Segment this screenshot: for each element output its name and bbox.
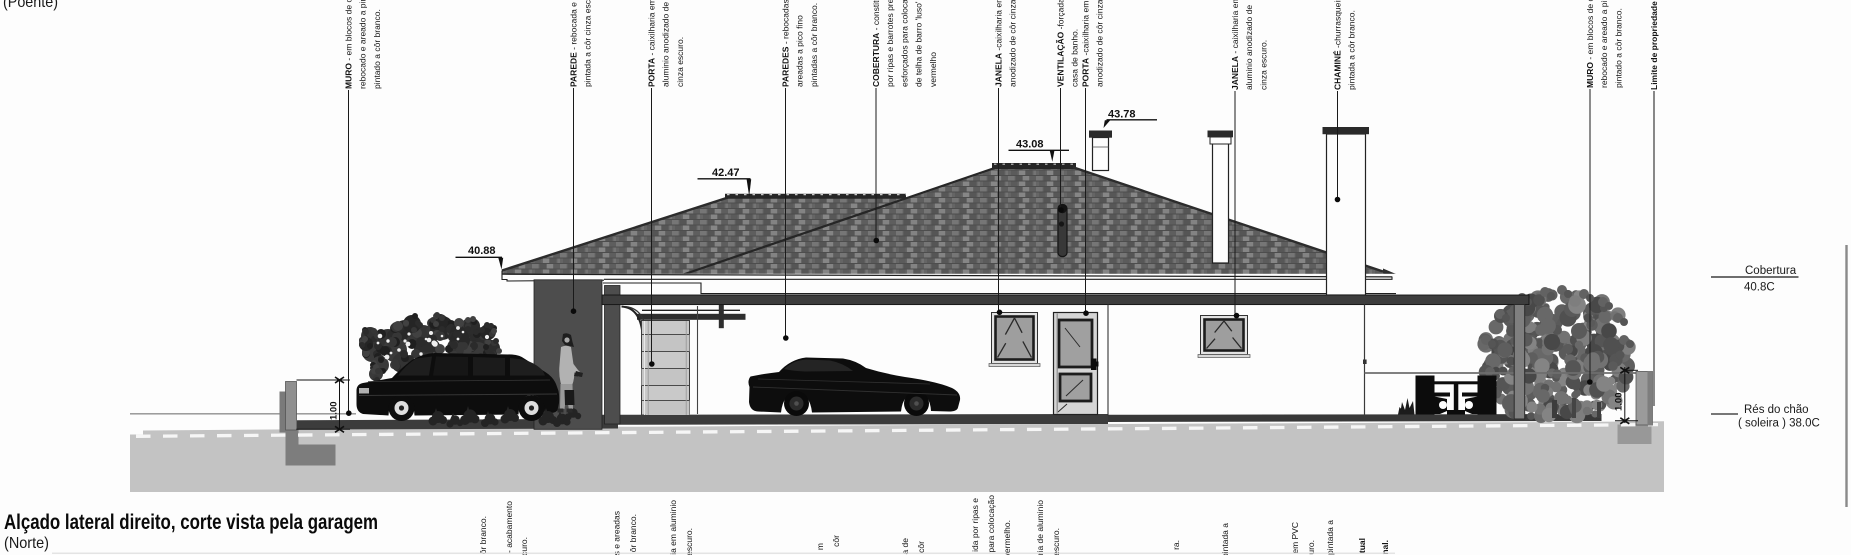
svg-text:42.47: 42.47	[712, 167, 740, 179]
svg-text:1.00: 1.00	[1614, 393, 1625, 412]
svg-text:tual: tual	[1357, 538, 1367, 553]
svg-text:PORTA -caixilharia em aluminio: PORTA -caixilharia em aluminio	[1081, 0, 1091, 87]
svg-text:Limite de propriedade: Limite de propriedade	[1649, 1, 1659, 90]
svg-text:pintado a côr branco.: pintado a côr branco.	[372, 9, 382, 89]
svg-text:40.88: 40.88	[468, 245, 496, 257]
svg-text:anodizado de côr cinza esc.: anodizado de côr cinza esc.	[1008, 0, 1018, 87]
svg-text:por ripas e barrotes pre: por ripas e barrotes pre	[885, 0, 895, 87]
svg-text:vermelho: vermelho	[928, 52, 938, 87]
svg-text:curo.: curo.	[519, 537, 529, 555]
svg-text:nal.: nal.	[1380, 540, 1390, 555]
svg-text:aluminio anodizado de: aluminio anodizado de	[1244, 5, 1254, 90]
svg-text:43.78: 43.78	[1108, 109, 1136, 121]
svg-text:JANELA -caixilharia em: JANELA -caixilharia em	[994, 0, 1004, 87]
svg-text:m: m	[815, 543, 825, 550]
svg-text:(Poente): (Poente)	[3, 0, 58, 11]
svg-text:uro.: uro.	[1306, 540, 1316, 555]
svg-text:pintada a: pintada a	[1220, 523, 1230, 555]
svg-text:de telha de barro 'luso': de telha de barro 'luso'	[914, 1, 924, 87]
svg-text:escuro.: escuro.	[1051, 528, 1061, 555]
svg-text:côr: côr	[916, 541, 926, 553]
svg-text:1.00: 1.00	[329, 402, 340, 421]
svg-text:vermelho.: vermelho.	[1002, 520, 1012, 555]
svg-text:PORTA - caixilharia em: PORTA - caixilharia em	[647, 0, 657, 87]
svg-text:( soleira ) 38.0C: ( soleira ) 38.0C	[1738, 418, 1820, 430]
svg-text:- acabamento: - acabamento	[504, 501, 514, 553]
svg-text:JANELA - caixilharia em: JANELA - caixilharia em	[1230, 0, 1240, 90]
svg-text:areadas a pico fino: areadas a pico fino	[795, 15, 805, 87]
svg-text:ôr branco.: ôr branco.	[478, 516, 488, 554]
svg-text:s para colocação: s para colocação	[986, 495, 996, 555]
svg-text:43.08: 43.08	[1016, 139, 1044, 151]
svg-text:s e areadas: s e areadas	[612, 511, 622, 555]
svg-text:ôr branco.: ôr branco.	[628, 514, 638, 552]
svg-text:pintada a côr cinza escuro.: pintada a côr cinza escuro.	[583, 0, 593, 87]
svg-text:ria em aluminio: ria em aluminio	[668, 500, 678, 555]
svg-text:CHAMINÉ -churrasqueira: CHAMINÉ -churrasqueira	[1333, 0, 1343, 90]
svg-text:PAREDE - rebocada e: PAREDE - rebocada e	[569, 2, 579, 87]
svg-text:cinza escuro.: cinza escuro.	[1258, 40, 1268, 90]
svg-text:cinza escuro.: cinza escuro.	[675, 37, 685, 87]
svg-text:escuro.: escuro.	[684, 528, 694, 555]
svg-text:MURO - em blocos de cimento: MURO - em blocos de cimento	[1585, 0, 1595, 88]
svg-text:aluminio anodizado de côr: aluminio anodizado de côr	[661, 0, 671, 87]
svg-text:PAREDES - rebocadas e: PAREDES - rebocadas e	[781, 0, 791, 87]
svg-text:anodizado de côr cinza esc.: anodizado de côr cinza esc.	[1095, 0, 1105, 87]
svg-text:VENTILAÇÃO -forçada da: VENTILAÇÃO -forçada da	[1056, 0, 1066, 87]
svg-text:ra.: ra.	[1171, 540, 1181, 550]
svg-text:rebocado e areado a pintar: rebocado e areado a pintar	[358, 0, 368, 89]
svg-text:(Norte): (Norte)	[4, 535, 49, 552]
svg-text:ria de aluminio: ria de aluminio	[1035, 500, 1045, 555]
svg-text:COBERTURA - constituida: COBERTURA - constituida	[871, 0, 881, 87]
svg-text:a de: a de	[900, 538, 910, 555]
svg-text:ida por ripas e: ida por ripas e	[970, 498, 980, 552]
svg-text:rebocado e areado a pintar: rebocado e areado a pintar	[1599, 0, 1609, 88]
svg-text:Alçado lateral direito, corte: Alçado lateral direito, corte vista pela…	[4, 510, 378, 534]
svg-text:casa de banho.: casa de banho.	[1070, 29, 1080, 87]
svg-text:côr: côr	[831, 535, 841, 547]
svg-text:pintadas a côr branco.: pintadas a côr branco.	[809, 3, 819, 87]
svg-text:pintado a côr branco.: pintado a côr branco.	[1613, 8, 1623, 88]
svg-text:MURO - em blocos de cimento: MURO - em blocos de cimento	[344, 0, 354, 89]
svg-text:em PVC: em PVC	[1290, 522, 1300, 554]
svg-text:pintada a: pintada a	[1325, 520, 1335, 555]
svg-text:Rés do chão: Rés do chão	[1744, 404, 1809, 416]
svg-text:pintada a côr branco.: pintada a côr branco.	[1347, 10, 1357, 90]
svg-text:40.8C: 40.8C	[1744, 282, 1775, 294]
svg-text:Cobertura: Cobertura	[1745, 265, 1797, 277]
svg-text:esforçados para colocação: esforçados para colocação	[899, 0, 909, 87]
